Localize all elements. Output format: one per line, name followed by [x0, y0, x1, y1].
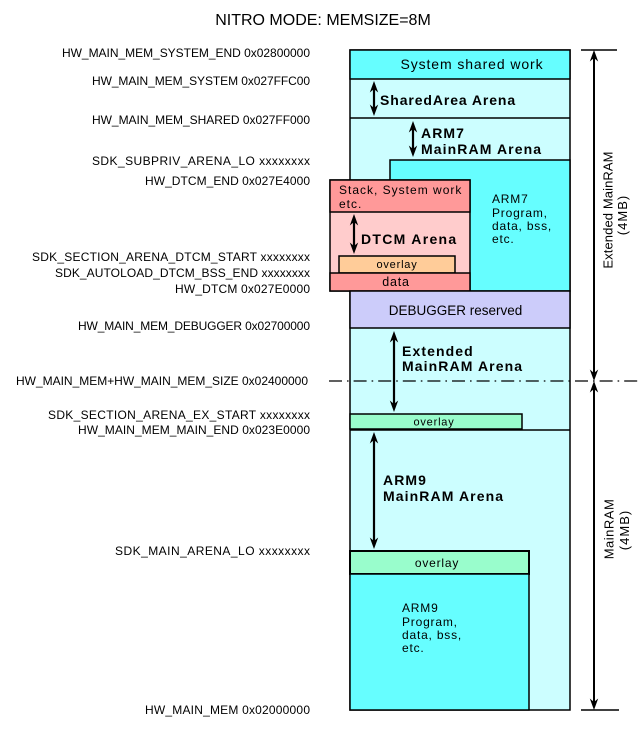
svg-text:data, bss,: data, bss,: [402, 628, 462, 642]
svg-text:DEBUGGER reserved: DEBUGGER reserved: [389, 303, 523, 318]
svg-text:ARM9: ARM9: [383, 472, 427, 488]
svg-text:MainRAM Arena: MainRAM Arena: [402, 358, 523, 374]
svg-text:DTCM Arena: DTCM Arena: [361, 231, 458, 247]
svg-text:HW_DTCM_END 0x027E4000: HW_DTCM_END 0x027E4000: [145, 174, 310, 188]
svg-text:HW_MAIN_MEM_SHARED 0x027FF000: HW_MAIN_MEM_SHARED 0x027FF000: [92, 113, 310, 127]
svg-text:Extended: Extended: [402, 343, 474, 359]
svg-text:overlay: overlay: [415, 556, 459, 570]
svg-text:SDK_SECTION_ARENA_EX_START xxx: SDK_SECTION_ARENA_EX_START xxxxxxxx: [48, 408, 310, 422]
svg-text:ARM7: ARM7: [421, 125, 465, 141]
svg-text:Program,: Program,: [402, 615, 458, 629]
svg-text:Extended MainRAM: Extended MainRAM: [601, 151, 616, 268]
svg-text:data, bss,: data, bss,: [492, 219, 552, 233]
svg-text:MainRAM Arena: MainRAM Arena: [383, 488, 504, 504]
svg-text:NITRO MODE: MEMSIZE=8M: NITRO MODE: MEMSIZE=8M: [215, 12, 431, 29]
svg-text:HW_MAIN_MEM_SYSTEM 0x027FFC00: HW_MAIN_MEM_SYSTEM 0x027FFC00: [92, 74, 310, 88]
svg-text:overlay: overlay: [413, 417, 454, 429]
svg-text:HW_MAIN_MEM+HW_MAIN_MEM_SIZE 0: HW_MAIN_MEM+HW_MAIN_MEM_SIZE 0x02400000: [16, 374, 308, 388]
svg-text:Stack, System work: Stack, System work: [339, 183, 462, 197]
svg-text:SharedArea Arena: SharedArea Arena: [380, 92, 516, 108]
svg-text:MainRAM Arena: MainRAM Arena: [421, 141, 542, 157]
svg-text:etc.: etc.: [492, 232, 515, 246]
svg-text:HW_MAIN_MEM_SYSTEM_END 0x02800: HW_MAIN_MEM_SYSTEM_END 0x02800000: [62, 46, 310, 60]
svg-text:SDK_SECTION_ARENA_DTCM_START x: SDK_SECTION_ARENA_DTCM_START xxxxxxxx: [32, 250, 310, 264]
svg-text:HW_MAIN_MEM_MAIN_END 0x023E000: HW_MAIN_MEM_MAIN_END 0x023E0000: [78, 423, 310, 437]
svg-text:overlay: overlay: [376, 259, 417, 271]
svg-text:etc.: etc.: [339, 197, 362, 211]
svg-text:HW_MAIN_MEM 0x02000000: HW_MAIN_MEM 0x02000000: [145, 703, 310, 717]
svg-text:SDK_AUTOLOAD_DTCM_BSS_END xxxx: SDK_AUTOLOAD_DTCM_BSS_END xxxxxxxx: [55, 266, 310, 280]
svg-text:SDK_SUBPRIV_ARENA_LO xxxxxxxx: SDK_SUBPRIV_ARENA_LO xxxxxxxx: [92, 154, 310, 168]
svg-text:MainRAM: MainRAM: [602, 499, 617, 560]
svg-text:etc.: etc.: [402, 641, 425, 655]
svg-text:HW_MAIN_MEM_DEBUGGER 0x0270000: HW_MAIN_MEM_DEBUGGER 0x02700000: [78, 319, 310, 333]
svg-text:System shared work: System shared work: [400, 56, 543, 72]
svg-text:SDK_MAIN_ARENA_LO xxxxxxxx: SDK_MAIN_ARENA_LO xxxxxxxx: [115, 544, 310, 558]
svg-text:(4MB): (4MB): [617, 510, 632, 550]
svg-text:data: data: [382, 275, 410, 289]
svg-text:HW_DTCM 0x027E0000: HW_DTCM 0x027E0000: [175, 282, 310, 296]
svg-text:(4MB): (4MB): [615, 195, 630, 235]
svg-text:ARM7: ARM7: [492, 192, 529, 206]
svg-text:Program,: Program,: [492, 206, 548, 220]
svg-text:ARM9: ARM9: [402, 601, 439, 615]
